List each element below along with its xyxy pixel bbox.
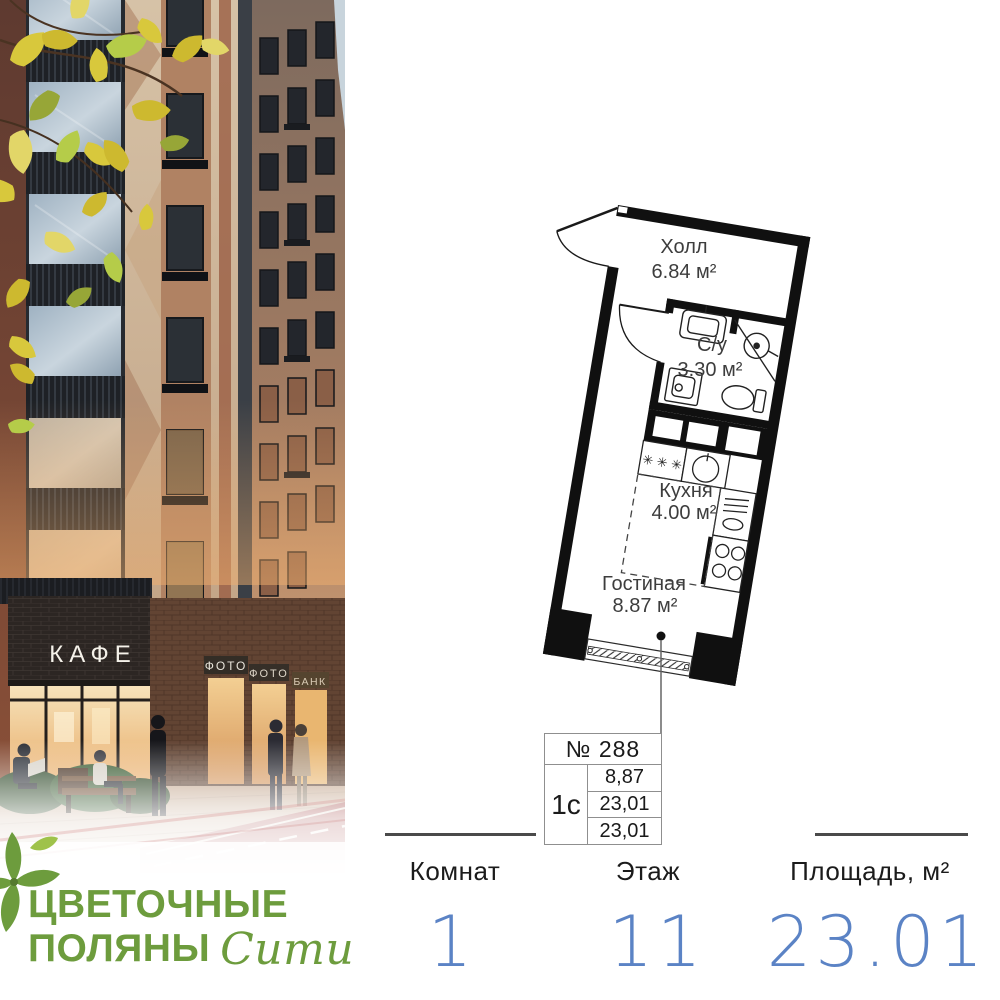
vent-asterisks: ✳ ✳ ✳ <box>641 452 683 473</box>
logo-script: Сити <box>220 924 354 975</box>
door-jamb-notch <box>618 206 628 213</box>
leader-dot <box>657 632 666 641</box>
bathroom-walls <box>649 298 787 428</box>
shower-icon <box>726 320 784 382</box>
washing-machine-icon <box>664 368 702 406</box>
kitchen-area: 4.00 м² <box>652 502 717 524</box>
dish-counter <box>713 488 756 541</box>
toilet-icon <box>720 383 766 413</box>
bathroom-label: С/у <box>697 334 727 356</box>
window <box>585 639 693 676</box>
room-labels: Холл 6.84 м² С/у 3.30 м² Кухня 4.00 м² Г… <box>602 236 743 617</box>
kitchen-sink-icon <box>691 451 721 484</box>
cafe-sign: КАФЕ <box>49 641 136 668</box>
kitchen-label: Кухня <box>659 480 713 502</box>
layout-type: 1с <box>545 765 588 844</box>
bathroom-area: 3.30 м² <box>678 359 743 381</box>
hall-label: Холл <box>660 236 707 258</box>
photo-sign-2: ФОТО <box>249 668 289 680</box>
apartment-number: № 288 <box>545 734 661 765</box>
floor-label: Этаж <box>616 856 680 887</box>
kitchen-counter <box>638 440 687 481</box>
photo-sign-1: ФОТО <box>205 659 248 673</box>
bank-sign: БАНК <box>293 676 326 688</box>
listing-card: КАФЕ ФОТО ФОТО БАНК <box>0 0 1000 1000</box>
living-area: 8.87 м² <box>613 595 678 617</box>
hall-area: 6.84 м² <box>652 261 717 283</box>
apartment-info-table: № 288 1с 8,87 23,01 23,01 <box>544 733 662 845</box>
divider-left <box>385 833 536 836</box>
plan-walls: ✳ ✳ ✳ <box>488 196 811 686</box>
living-label: Гостиная <box>602 573 686 595</box>
divider-right <box>815 833 968 836</box>
kitchen-zone-dashed <box>621 474 720 586</box>
rooms-value: 1 <box>428 901 477 983</box>
rooms-label: Комнат <box>410 856 501 887</box>
duct-shafts <box>643 409 768 461</box>
area-value: 23.01 <box>767 901 987 983</box>
logo-line-2: ПОЛЯНЫСити <box>28 925 354 970</box>
building-photo: КАФЕ ФОТО ФОТО БАНК <box>0 0 345 882</box>
area-sale: 23,01 <box>588 817 661 844</box>
dish-rack-icon <box>720 497 749 532</box>
area-total: 23,01 <box>588 791 661 818</box>
area-living: 8,87 <box>588 765 661 791</box>
bathroom-door-arc <box>611 305 669 363</box>
kitchen-sink-counter <box>681 448 730 489</box>
logo-line-1: ЦВЕТОЧНЫЕ <box>28 885 354 925</box>
sink-icon <box>679 301 728 344</box>
entrance-door-arc <box>553 199 619 267</box>
floor-value: 11 <box>608 901 705 983</box>
area-label: Площадь, м² <box>790 856 950 887</box>
developer-logo: ЦВЕТОЧНЫЕ ПОЛЯНЫСити <box>0 815 360 1000</box>
stove-icon <box>704 535 748 592</box>
